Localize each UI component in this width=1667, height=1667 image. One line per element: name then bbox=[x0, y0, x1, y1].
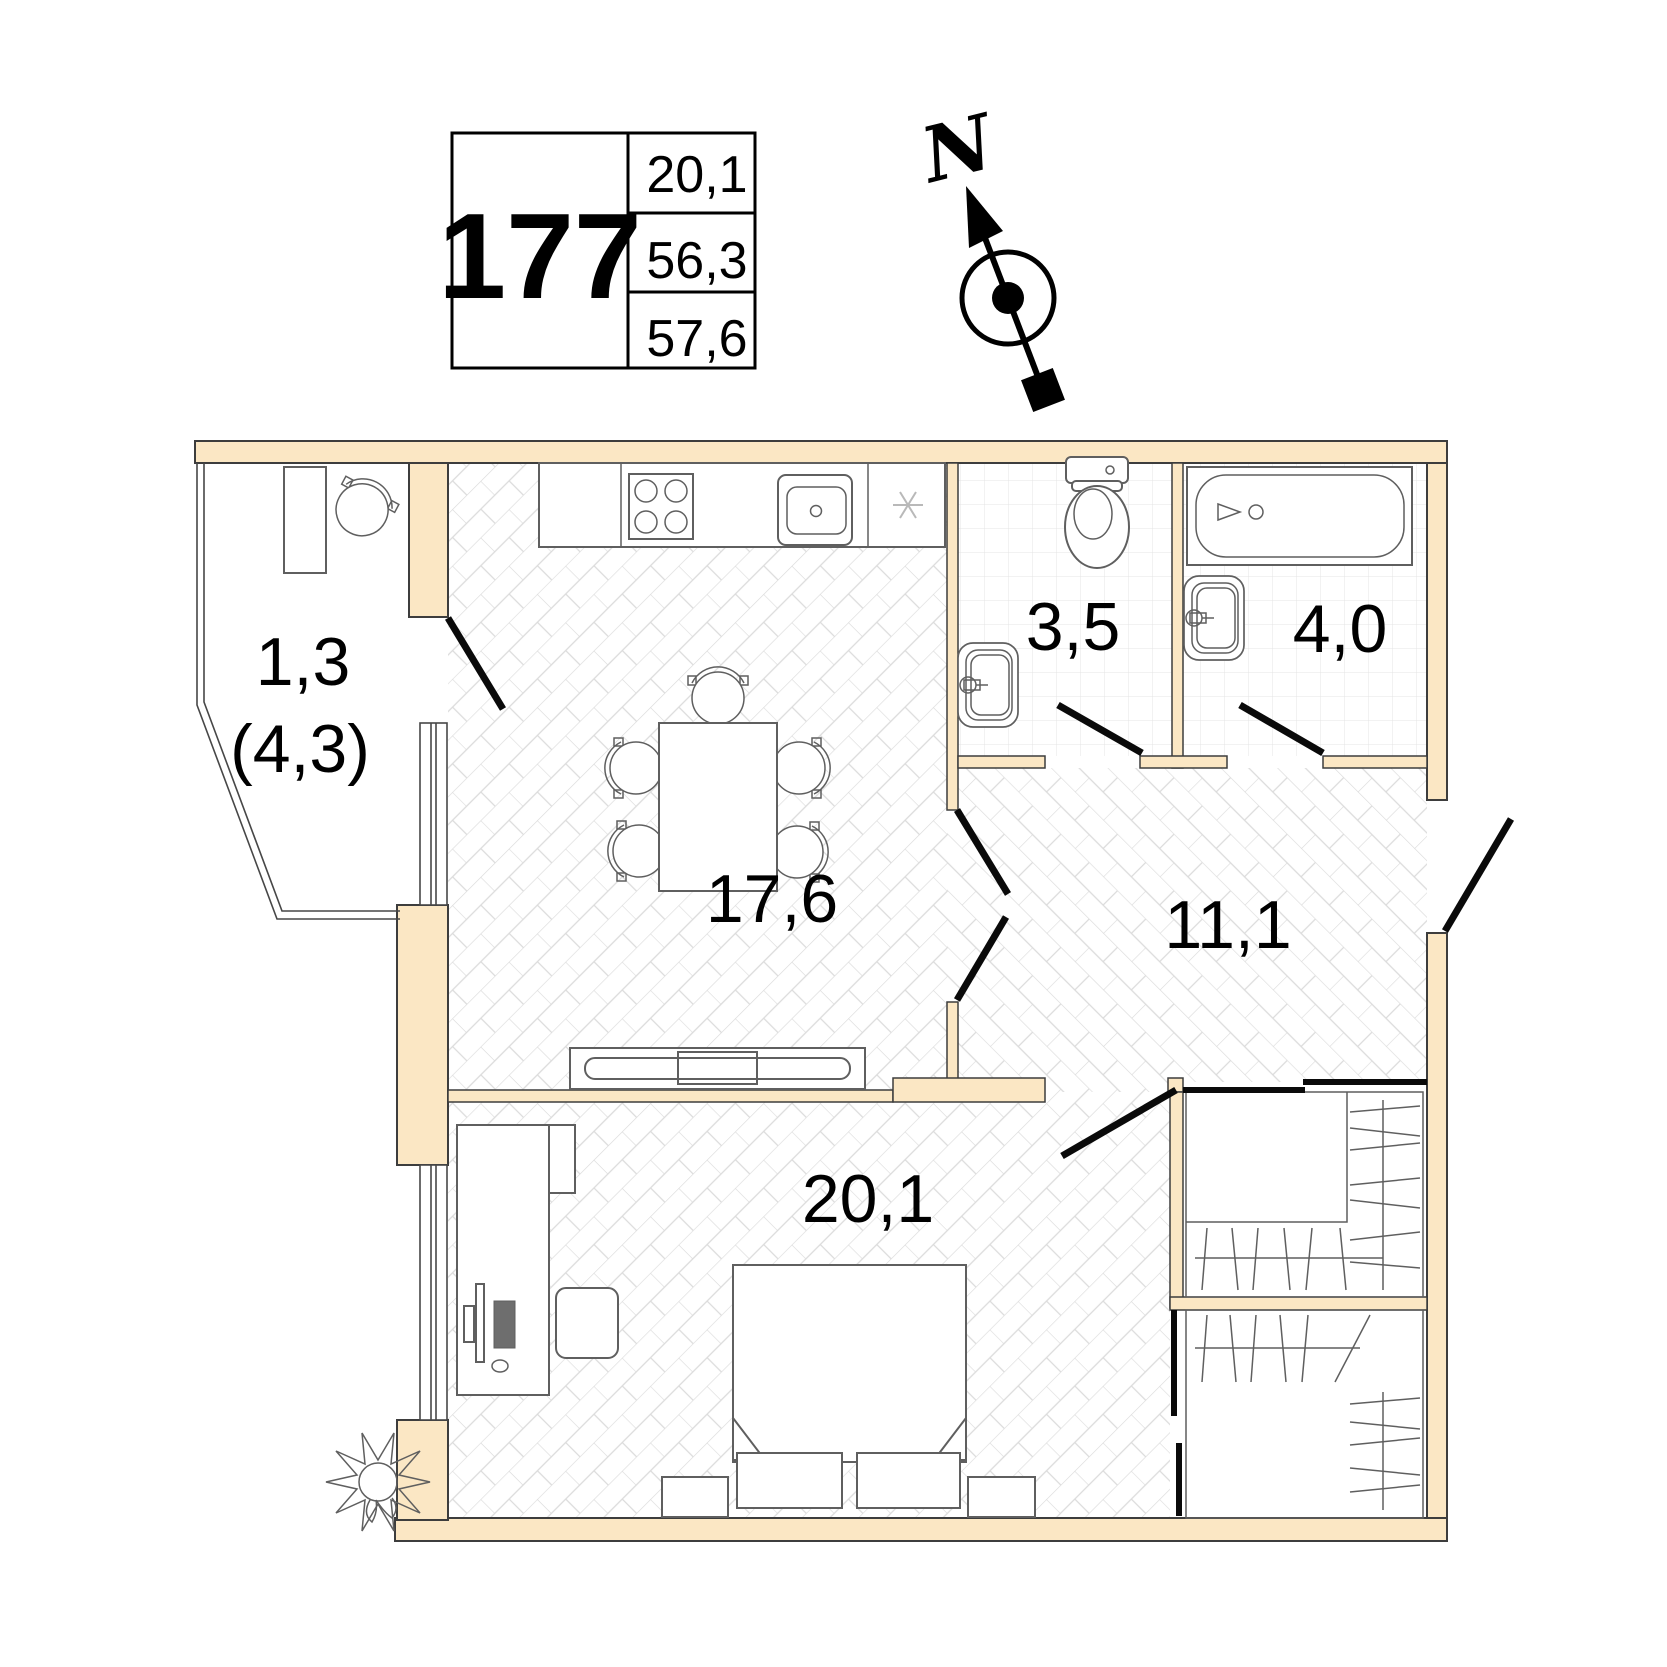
nightstand bbox=[968, 1477, 1035, 1517]
bath-washbasin-icon bbox=[1184, 576, 1244, 660]
living-room-window bbox=[420, 723, 447, 905]
wc-area-label: 3,5 bbox=[1026, 589, 1121, 665]
hanging-rail-icon bbox=[1350, 1100, 1420, 1290]
west-wall-lower-pier bbox=[397, 1420, 448, 1520]
hanging-rail-icon bbox=[1350, 1392, 1420, 1510]
nightstand bbox=[662, 1477, 728, 1517]
west-wall-upper-pier bbox=[409, 463, 448, 617]
hallway-area-label: 11,1 bbox=[1164, 887, 1291, 963]
east-wall-upper bbox=[1427, 463, 1447, 800]
wc-washbasin-icon bbox=[958, 643, 1018, 727]
info-table: 177 20,1 56,3 57,6 bbox=[438, 133, 755, 368]
desk-chair bbox=[556, 1288, 618, 1358]
west-wall-middle-pier bbox=[397, 905, 448, 1165]
bath-south-wall-left bbox=[1140, 756, 1227, 768]
bed-blanket bbox=[733, 1265, 966, 1462]
hanging-rail-icon bbox=[1195, 1228, 1383, 1290]
compass-tail-square-icon bbox=[1021, 368, 1065, 412]
bath-south-wall-right bbox=[1323, 756, 1427, 768]
compass-arrowhead-icon bbox=[966, 186, 1003, 248]
closet-divider-wall bbox=[1170, 1297, 1427, 1310]
toilet-icon bbox=[1065, 457, 1129, 568]
unit-number: 177 bbox=[438, 188, 642, 324]
balcony-chair-icon bbox=[323, 468, 403, 547]
entry-door-swing bbox=[1445, 819, 1511, 931]
doorway-floor-strip bbox=[947, 815, 958, 1000]
balcony-area-label: 1,3 bbox=[256, 624, 351, 700]
living-bedroom-wall bbox=[448, 1090, 893, 1102]
pillow bbox=[737, 1453, 842, 1508]
keyboard-icon bbox=[494, 1301, 515, 1348]
pillow bbox=[857, 1453, 960, 1508]
bedroom-wardrobe bbox=[1186, 1310, 1423, 1518]
hanging-rail-icon bbox=[1195, 1315, 1370, 1382]
north-compass: N bbox=[911, 96, 1065, 412]
bathtub-icon bbox=[1187, 467, 1412, 565]
compass-center-dot bbox=[992, 282, 1024, 314]
monitor-icon bbox=[476, 1284, 484, 1362]
living-area-value: 20,1 bbox=[646, 146, 747, 204]
wc-bath-divider-wall bbox=[1172, 463, 1183, 768]
north-label: N bbox=[911, 96, 1004, 200]
south-wall bbox=[395, 1518, 1447, 1541]
living-bedroom-wall-thick bbox=[893, 1078, 1045, 1102]
desk-return bbox=[549, 1125, 575, 1193]
bedroom-area-label: 20,1 bbox=[802, 1161, 934, 1237]
north-wall bbox=[195, 441, 1447, 463]
floor-plan: 177 20,1 56,3 57,6 N bbox=[0, 0, 1667, 1667]
bathroom-area-label: 4,0 bbox=[1293, 591, 1388, 667]
balcony-furniture bbox=[284, 467, 403, 573]
closet-west-wall bbox=[1170, 1092, 1183, 1308]
wc-south-wall bbox=[958, 756, 1045, 768]
balcony-area-total-label: (4,3) bbox=[230, 711, 370, 787]
wc-west-wall bbox=[947, 463, 958, 810]
east-wall-lower bbox=[1427, 933, 1447, 1518]
floor-plan-page: 177 20,1 56,3 57,6 N bbox=[0, 0, 1667, 1667]
tv-console bbox=[570, 1048, 865, 1089]
bedroom-window bbox=[420, 1165, 447, 1420]
kitchen-living-area-label: 17,6 bbox=[706, 861, 838, 937]
balcony-table bbox=[284, 467, 326, 573]
total-area-value: 57,6 bbox=[646, 310, 747, 368]
hallway-wardrobe bbox=[1186, 1092, 1423, 1297]
kitchen-counter bbox=[539, 463, 945, 547]
apartment-area-value: 56,3 bbox=[646, 232, 747, 290]
